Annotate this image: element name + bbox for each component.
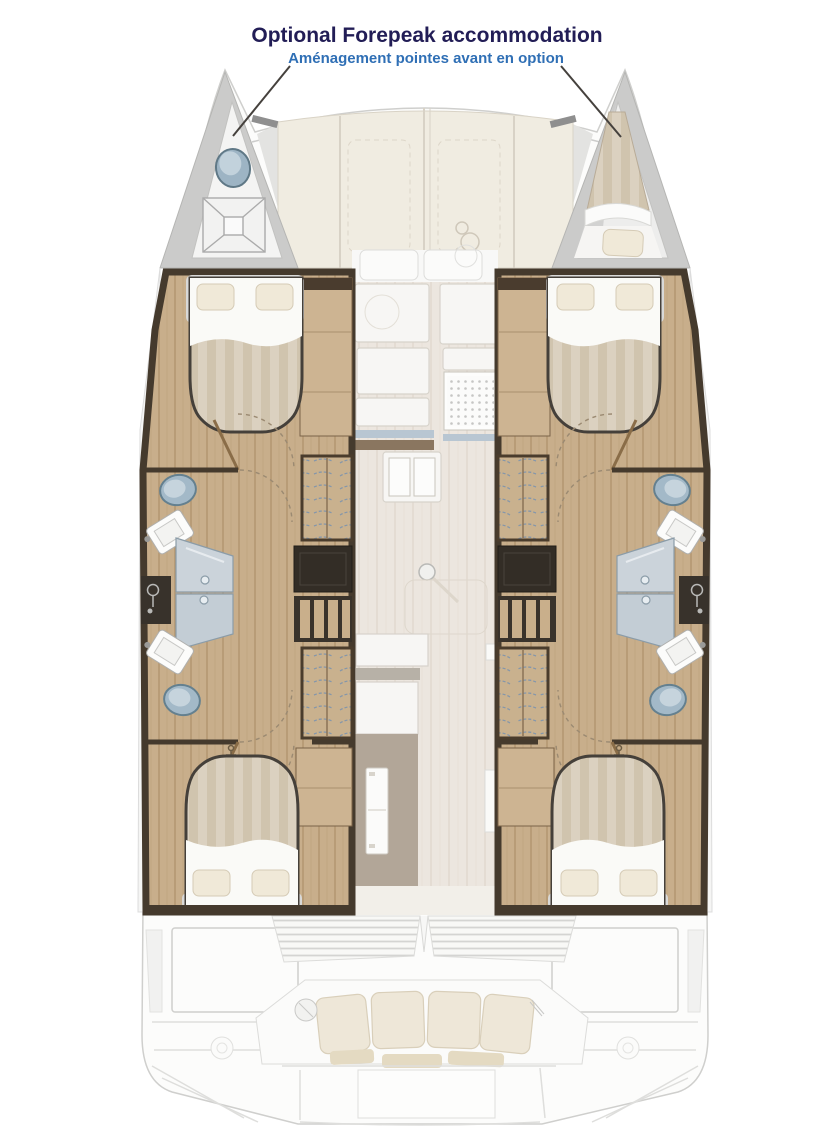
saloon: Saloon sole Galley worktops and sink Coo… bbox=[350, 245, 498, 915]
annotation-title: Optional Forepeak accommodation bbox=[251, 24, 602, 47]
pillow bbox=[602, 229, 643, 257]
shower-tray bbox=[203, 198, 265, 252]
foredeck: Foredeck lounge panels Anchor windlass bbox=[251, 108, 593, 268]
galley-island: Galley island Refrigerator bbox=[350, 634, 428, 886]
saloon-seat bbox=[424, 250, 482, 280]
louver-vent bbox=[272, 916, 420, 962]
saloon-seat bbox=[360, 250, 418, 280]
deck-cleat bbox=[251, 115, 278, 128]
fridge: Refrigerator bbox=[366, 768, 388, 854]
stove: Cooktop grid bbox=[444, 372, 497, 430]
louver-vent bbox=[428, 916, 576, 962]
catamaran-deck-plan: Forward double cabin (island bed, two pi… bbox=[0, 0, 828, 1129]
deck-plan-canvas: Forward double cabin (island bed, two pi… bbox=[0, 0, 828, 1129]
annotation-subtitle: Aménagement pointes avant en option bbox=[288, 50, 564, 67]
